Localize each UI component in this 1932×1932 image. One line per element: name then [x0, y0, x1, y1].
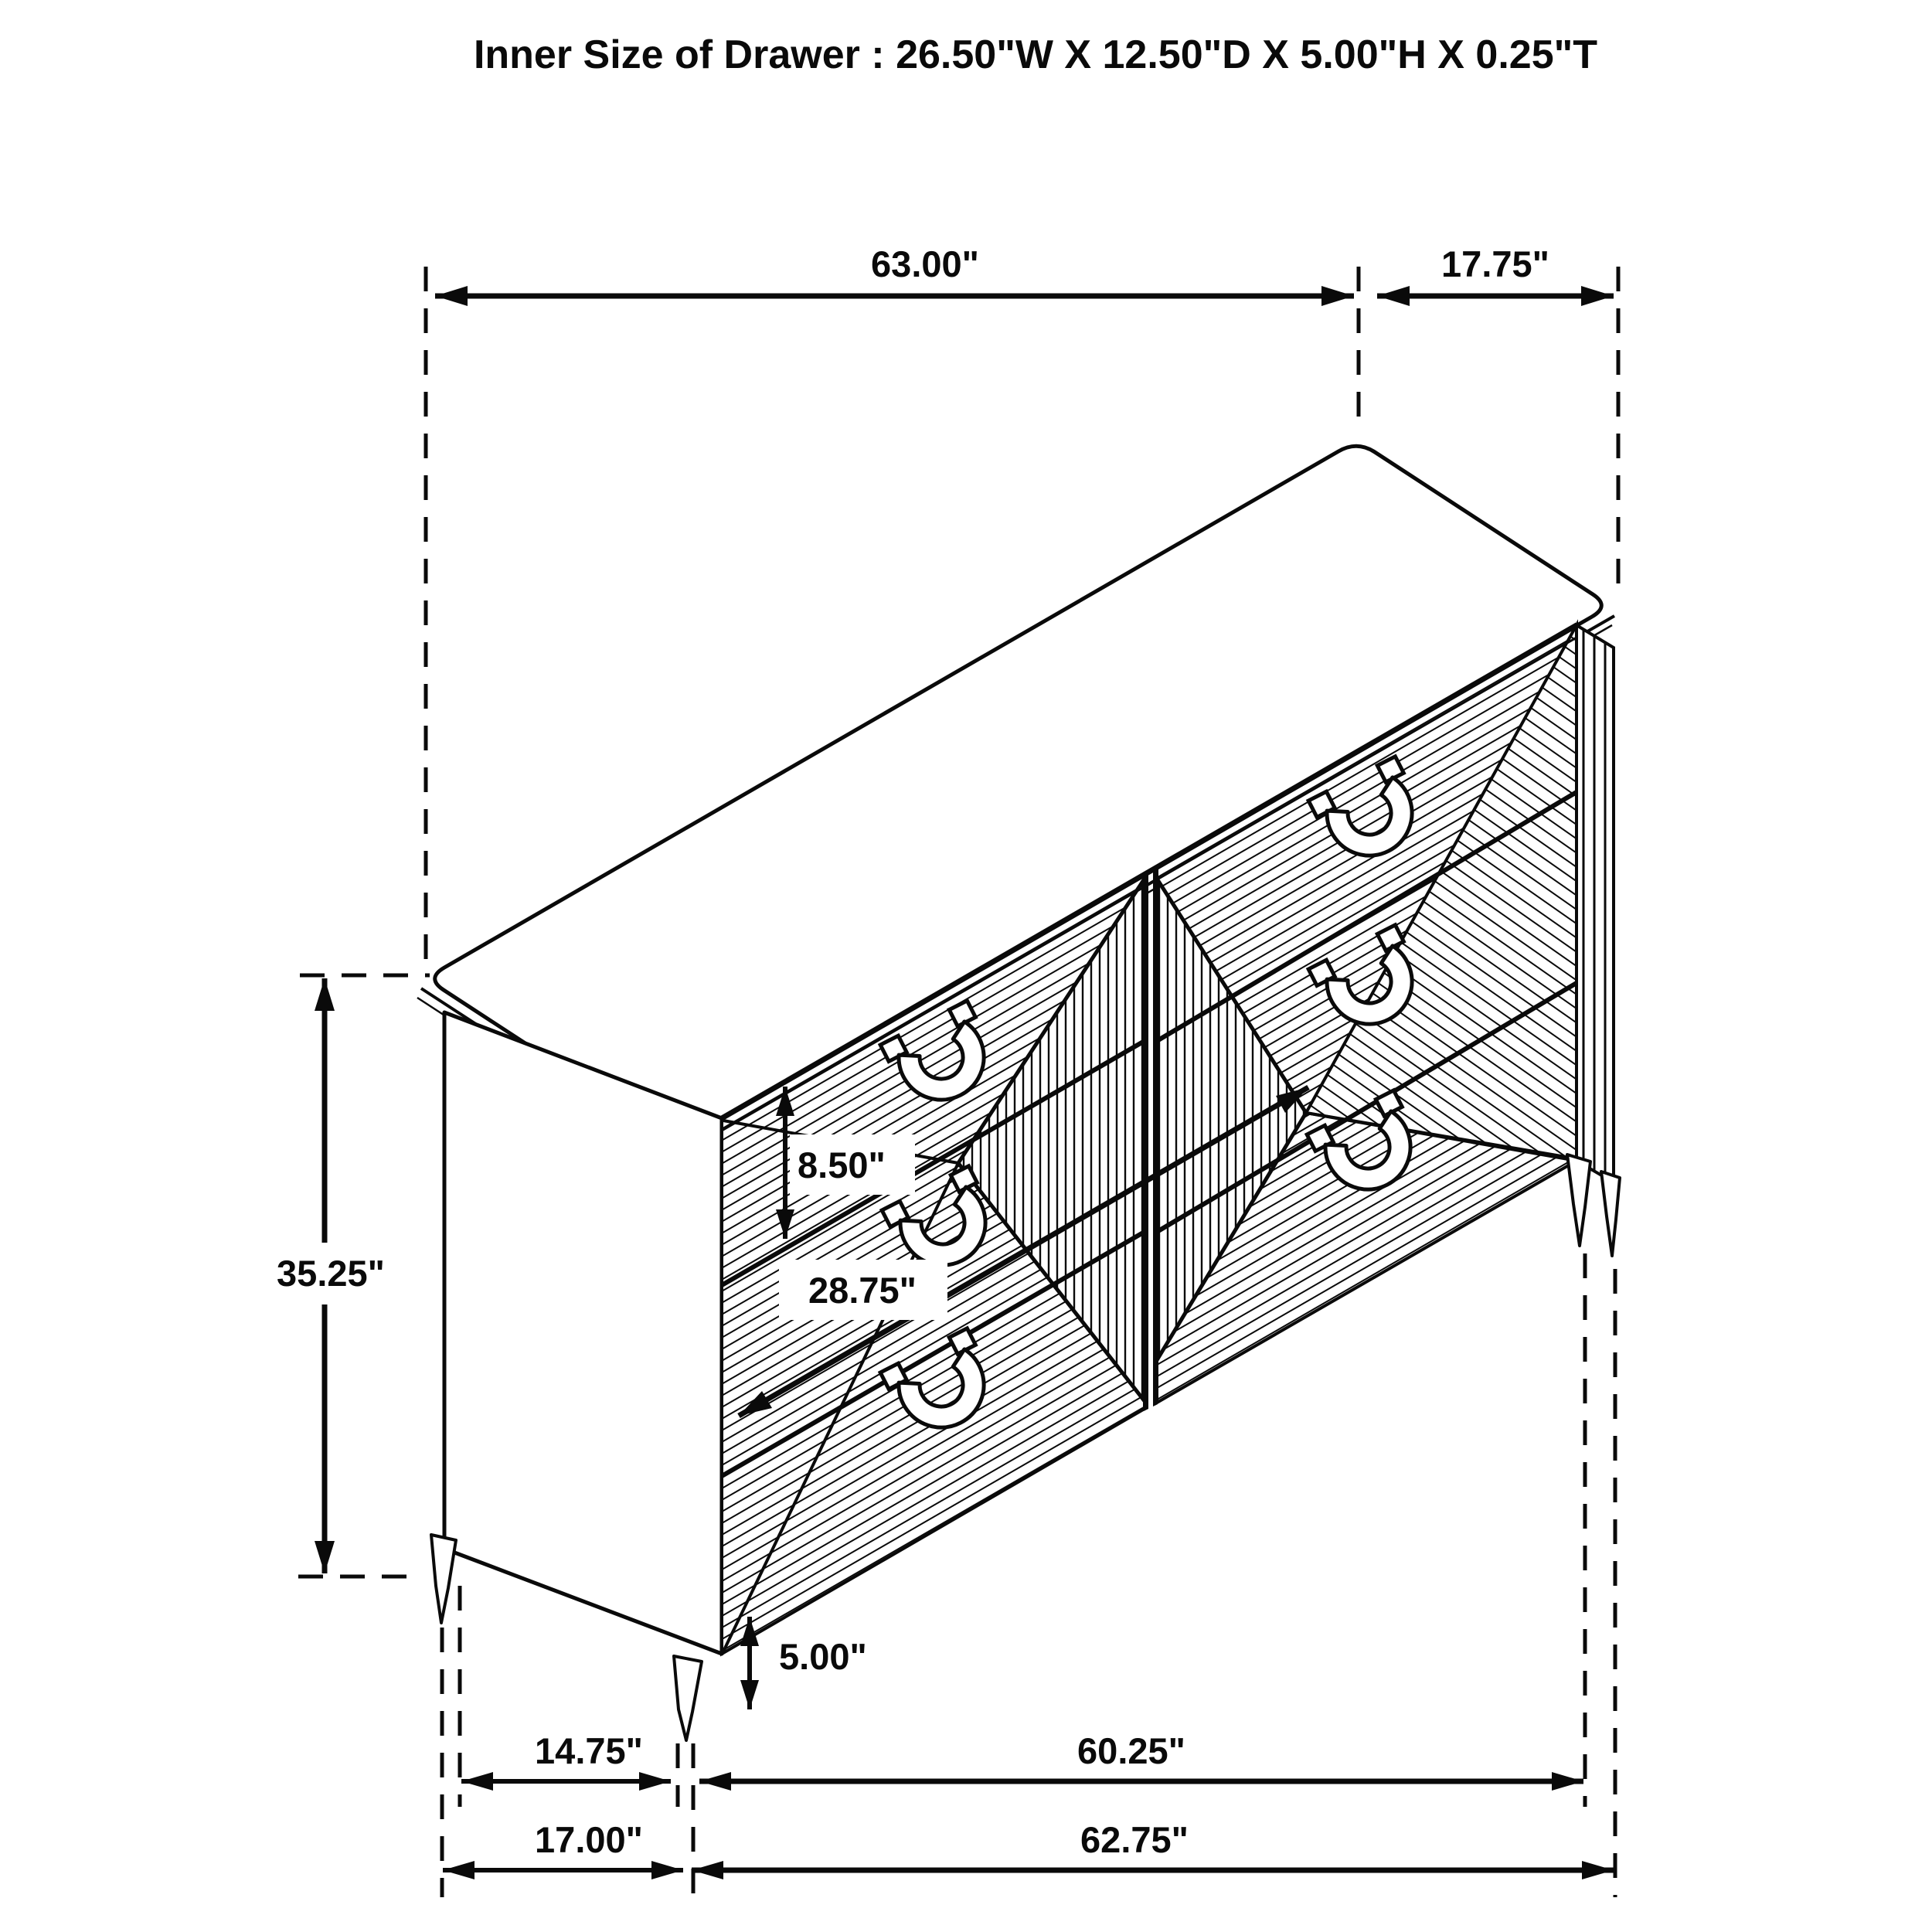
dimension-total-height: 35.25" — [253, 978, 408, 1573]
arrowhead-right-icon — [639, 1772, 671, 1791]
arrowhead-up-icon — [315, 978, 335, 1011]
dimension-side-total-depth: 17.00" — [443, 1819, 683, 1879]
center-stile — [1144, 869, 1158, 1411]
dimension-label-side-leg-span: 14.75" — [535, 1730, 643, 1771]
dimension-label-leg-height: 5.00" — [779, 1636, 867, 1677]
leg-back-left — [431, 1535, 456, 1623]
dimension-label-front-leg-span: 60.25" — [1077, 1730, 1185, 1771]
dimension-label-side-total-depth: 17.00" — [535, 1819, 643, 1860]
dimension-diagram-page: Inner Size of Drawer : 26.50"W X 12.50"D… — [0, 0, 1932, 1932]
page-title: Inner Size of Drawer : 26.50"W X 12.50"D… — [474, 32, 1597, 77]
dimension-front-total-width: 62.75" — [692, 1819, 1614, 1879]
left-side-panel — [444, 1012, 722, 1654]
arrowhead-left-icon — [461, 1772, 493, 1791]
dimension-label-top-width: 63.00" — [871, 243, 979, 284]
dresser-illustration — [417, 446, 1620, 1740]
dimension-label-total-height: 35.25" — [277, 1253, 385, 1294]
leg-front-left — [674, 1656, 702, 1740]
dimension-side-leg-span: 14.75" — [461, 1730, 671, 1791]
dimension-label-drawer-front-height: 8.50" — [798, 1145, 886, 1185]
arrowhead-left-icon — [699, 1772, 731, 1791]
arrowhead-down-icon — [315, 1541, 335, 1573]
arrowhead-left-icon — [692, 1861, 723, 1879]
arrowhead-right-icon — [1321, 286, 1354, 306]
leg-back-right — [1601, 1172, 1620, 1256]
dimension-top-depth: 17.75" — [1377, 243, 1614, 306]
arrowhead-left-icon — [435, 286, 468, 306]
leg-front-right — [1567, 1155, 1590, 1246]
dimension-label-top-depth: 17.75" — [1441, 243, 1549, 284]
arrowhead-left-icon — [443, 1861, 474, 1879]
right-end-panel — [1577, 625, 1614, 1182]
arrowhead-down-icon — [740, 1680, 759, 1709]
dimension-front-leg-span: 60.25" — [699, 1730, 1583, 1791]
dimension-top-width: 63.00" — [435, 243, 1354, 306]
arrowhead-right-icon — [651, 1861, 683, 1879]
arrowhead-right-icon — [1552, 1772, 1583, 1791]
dimension-label-front-total-width: 62.75" — [1080, 1819, 1189, 1860]
arrowhead-left-icon — [1377, 286, 1410, 306]
arrowhead-right-icon — [1582, 1861, 1614, 1879]
arrowhead-right-icon — [1581, 286, 1614, 306]
dresser-dimension-drawing: Inner Size of Drawer : 26.50"W X 12.50"D… — [0, 0, 1932, 1932]
dimension-label-drawer-inner-width: 28.75" — [808, 1270, 917, 1311]
